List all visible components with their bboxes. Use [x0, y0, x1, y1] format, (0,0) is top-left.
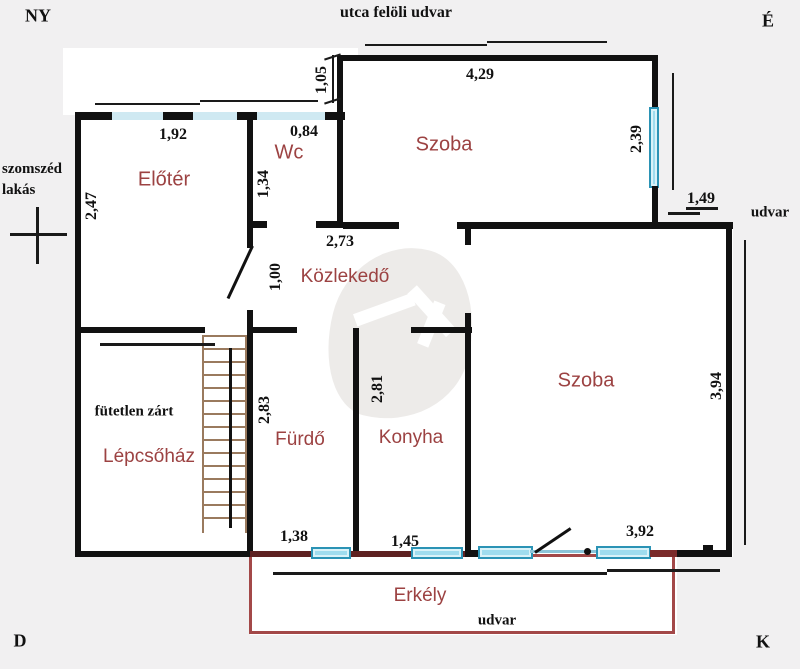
label-unheated-note: fütetlen zárt	[95, 404, 174, 421]
wall-bath-top	[251, 327, 297, 333]
label-neighbor-line1: szomszéd	[2, 161, 62, 178]
dim-429: 4,29	[466, 66, 494, 84]
dim-134: 1,34	[255, 170, 273, 198]
dim-192: 1,92	[159, 126, 187, 144]
dim-084: 0,84	[290, 123, 318, 141]
label-right-yard: udvar	[751, 205, 789, 222]
stair-tread	[202, 361, 247, 363]
compass-se: K	[756, 632, 770, 653]
wall-room-right-right	[726, 223, 732, 557]
stair-tread	[202, 452, 247, 454]
dimline-429-a	[365, 44, 487, 46]
balcony-railing-left	[273, 572, 607, 575]
wall-kitchen-left	[353, 328, 359, 555]
wall-wc-right	[337, 55, 343, 228]
window-band-top	[108, 112, 342, 120]
staircase-divider-line	[100, 343, 215, 346]
stair-tread	[202, 478, 247, 480]
stair-tread	[202, 400, 247, 402]
room-label-bathroom: Fürdő	[275, 429, 325, 451]
stair-tread	[202, 374, 247, 376]
balcony-railing-right	[607, 569, 720, 572]
compass-nw: NY	[25, 6, 51, 27]
wall-bottom-left	[75, 551, 253, 557]
window-239	[649, 107, 659, 188]
wall-kitchen-top	[411, 327, 472, 333]
dim-247: 2,47	[83, 192, 101, 220]
dimline-topleft-a	[95, 103, 200, 105]
stairs	[202, 335, 247, 535]
stair-tread	[202, 517, 247, 519]
stair-tread	[202, 491, 247, 493]
wall-top-seg2	[163, 112, 193, 120]
dimline-394	[744, 240, 746, 545]
neighbor-cross-v	[36, 207, 39, 264]
wall-entry-right-lower	[247, 310, 253, 557]
wall-exterior-left	[75, 112, 81, 557]
dim-149: 1,49	[687, 190, 715, 208]
dim-138: 1,38	[280, 528, 308, 546]
room-label-room-right: Szoba	[558, 370, 615, 393]
wall-room-top-top	[337, 55, 658, 61]
dim-100: 1,00	[267, 263, 285, 291]
wall-corridor-top-right	[457, 222, 733, 229]
area-room-top	[337, 55, 658, 228]
room-label-corridor: Közlekedő	[301, 266, 390, 288]
window-392a	[478, 546, 533, 559]
room-label-wc: Wc	[275, 142, 304, 165]
window-138	[311, 547, 351, 559]
window-392b	[596, 546, 651, 559]
dimline-429-b	[487, 41, 607, 43]
dim-105: 1,05	[313, 66, 331, 94]
dimline-topleft-b	[200, 100, 318, 102]
room-label-staircase: Lépcsőház	[103, 446, 195, 468]
dim-239: 2,39	[628, 125, 646, 153]
floorplan: NY É D K utca felöli udvar szomszéd laká…	[0, 0, 800, 669]
door-hinge-dot	[584, 548, 591, 555]
dim-392: 3,92	[626, 523, 654, 541]
watermark-roof-left	[353, 293, 416, 326]
dim-394: 3,94	[708, 372, 726, 400]
wall-corridor-top-left	[343, 222, 399, 229]
room-label-balcony: Erkély	[394, 585, 447, 607]
room-label-kitchen: Konyha	[379, 427, 443, 449]
compass-ne: É	[762, 11, 774, 32]
dim-283: 2,83	[256, 396, 274, 424]
compass-sw: D	[14, 631, 27, 652]
dimline-105	[332, 55, 334, 103]
wall-entry-bottom	[75, 327, 205, 333]
room-label-room-top: Szoba	[416, 134, 473, 157]
dim-145: 1,45	[391, 533, 419, 551]
wall-room-right-left-stub	[465, 229, 471, 245]
label-top-yard: utca felöli udvar	[340, 4, 452, 22]
balcony-outline	[249, 554, 675, 634]
label-bottom-yard: udvar	[478, 613, 516, 630]
stairs-center-line	[229, 348, 232, 528]
stair-tread	[202, 439, 247, 441]
wall-room-right-bottom-b	[677, 550, 732, 557]
stair-tread	[202, 504, 247, 506]
wall-bottom-maroon2	[650, 550, 677, 557]
dimline-149-a	[668, 212, 700, 215]
label-neighbor-line2: lakás	[2, 182, 35, 199]
dim-281: 2,81	[369, 375, 387, 403]
stair-tread	[202, 335, 247, 337]
wall-bottom-notch	[703, 545, 713, 550]
wall-room-top-right-upper	[652, 55, 658, 109]
stair-tread	[202, 465, 247, 467]
wall-wc-bottom-stub	[247, 221, 267, 228]
stair-tread	[202, 348, 247, 350]
dimline-239	[672, 73, 674, 190]
stair-tread	[202, 387, 247, 389]
wall-room-right-left	[465, 313, 471, 555]
stair-tread	[202, 413, 247, 415]
wall-room-right-bottom-a	[465, 550, 479, 557]
dim-273: 2,73	[326, 233, 354, 251]
room-label-entry: Előtér	[138, 169, 190, 192]
stair-tread	[202, 426, 247, 428]
